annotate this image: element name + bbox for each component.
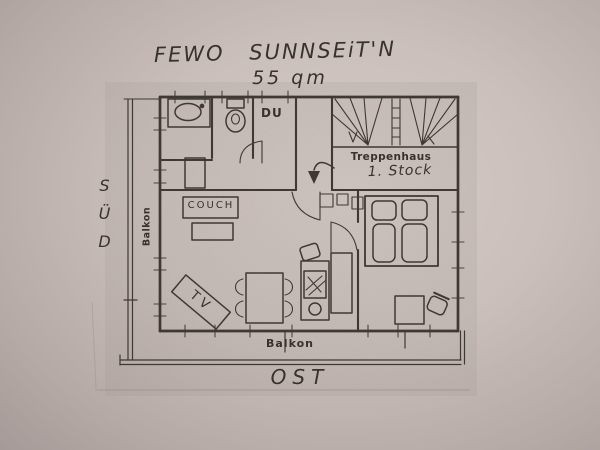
- couch-label: COUCH: [184, 200, 238, 211]
- balcony-bottom-label: Balkon: [235, 337, 345, 350]
- shower-label: DU: [261, 106, 283, 120]
- balcony-left-label: Balkon: [142, 199, 153, 255]
- floor-plan-photo: FEWO SUNNSEiT'N 55 qm SÜD Balkon Treppen…: [0, 0, 600, 450]
- orientation-south: SÜD: [95, 176, 114, 260]
- orientation-east: OST: [245, 365, 355, 389]
- plan-area: 55 qm: [235, 67, 345, 89]
